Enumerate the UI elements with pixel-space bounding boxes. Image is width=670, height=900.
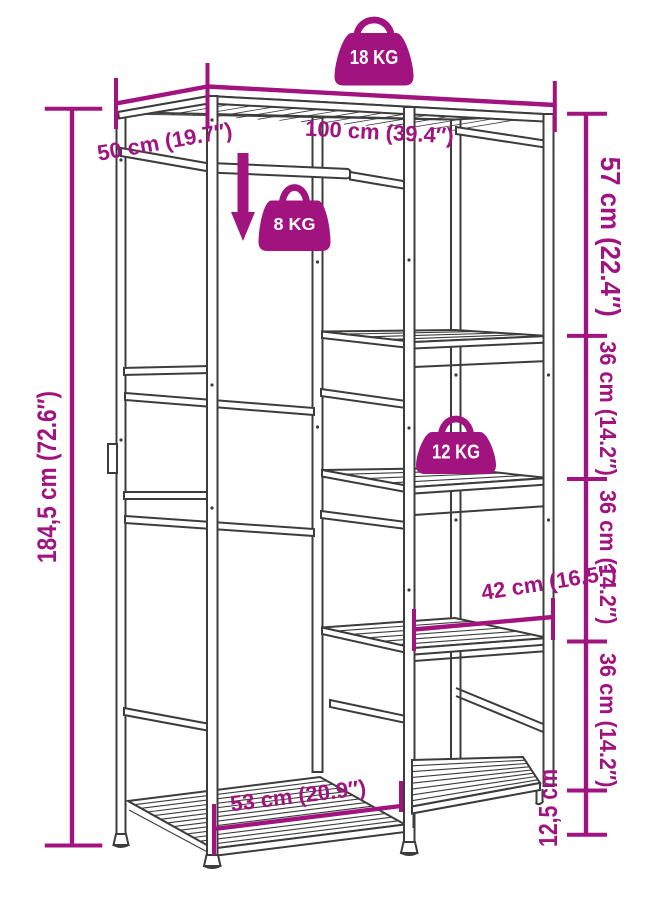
- svg-text:36 cm (14.2″): 36 cm (14.2″): [595, 341, 621, 476]
- svg-text:100 cm (39.4″): 100 cm (39.4″): [304, 116, 454, 149]
- svg-text:184,5 cm (72.6″): 184,5 cm (72.6″): [32, 391, 62, 563]
- svg-text:36 cm (14.2″): 36 cm (14.2″): [595, 490, 621, 625]
- svg-text:36 cm (14.2″): 36 cm (14.2″): [595, 653, 621, 788]
- svg-text:12,5 cm: 12,5 cm: [535, 769, 563, 847]
- svg-text:18 KG: 18 KG: [350, 47, 399, 69]
- svg-text:8 KG: 8 KG: [274, 214, 316, 234]
- svg-text:12 KG: 12 KG: [432, 441, 480, 463]
- svg-text:57 cm (22.4″): 57 cm (22.4″): [595, 157, 626, 317]
